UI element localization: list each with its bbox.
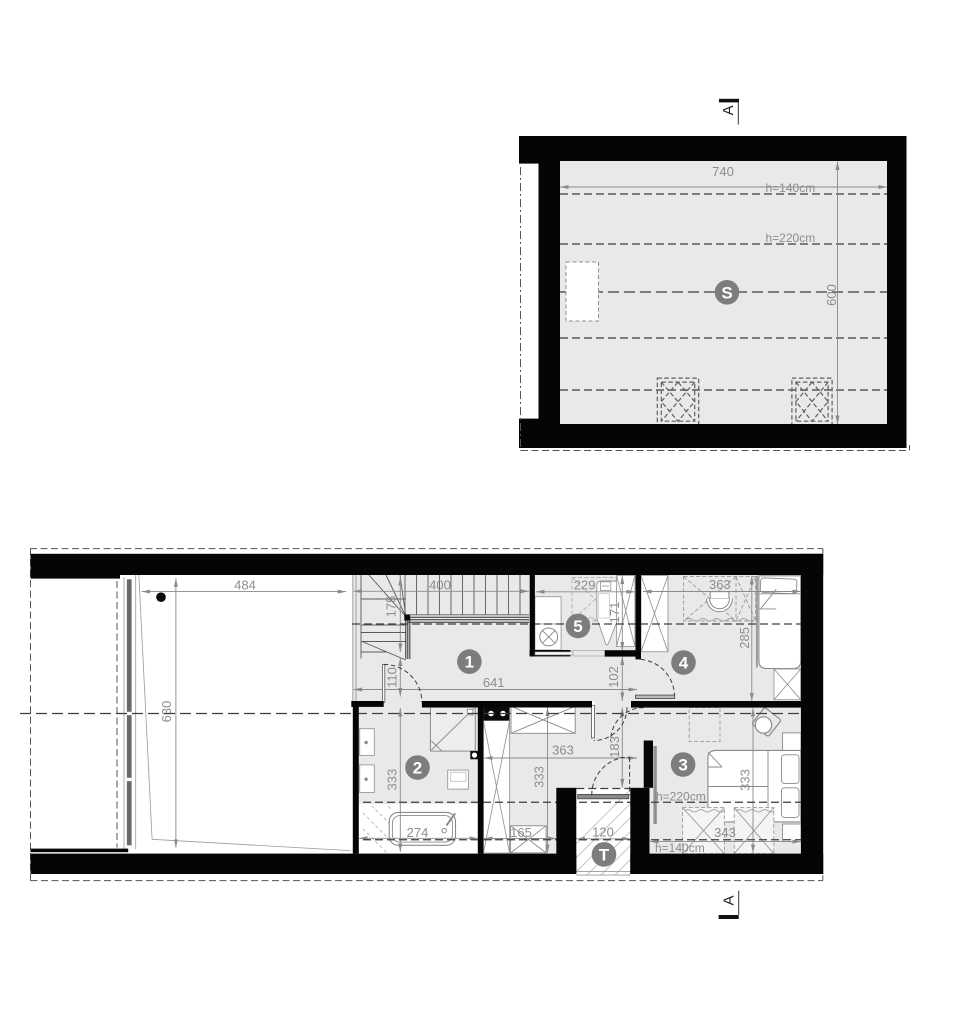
svg-text:333: 333 [385, 769, 400, 791]
svg-text:h=220cm: h=220cm [766, 231, 816, 245]
svg-text:183: 183 [607, 736, 622, 758]
svg-text:102: 102 [606, 666, 621, 688]
svg-text:A: A [720, 105, 737, 115]
svg-text:285: 285 [737, 627, 752, 649]
svg-text:600: 600 [824, 284, 839, 306]
svg-text:3: 3 [678, 756, 687, 775]
svg-text:h=140cm: h=140cm [766, 181, 816, 195]
svg-text:171: 171 [607, 602, 622, 624]
svg-text:165: 165 [510, 825, 532, 840]
svg-text:T: T [599, 845, 610, 864]
svg-text:630: 630 [159, 701, 174, 723]
svg-text:229: 229 [574, 578, 596, 593]
svg-text:740: 740 [712, 164, 734, 179]
svg-text:363: 363 [709, 577, 731, 592]
svg-text:h=140cm: h=140cm [655, 841, 705, 855]
svg-text:400: 400 [429, 578, 451, 593]
svg-text:333: 333 [738, 769, 753, 791]
svg-text:2: 2 [413, 759, 422, 778]
svg-text:110: 110 [385, 667, 400, 688]
svg-text:333: 333 [532, 766, 547, 788]
svg-text:363: 363 [552, 743, 574, 758]
svg-text:4: 4 [679, 654, 689, 673]
svg-text:1: 1 [465, 653, 474, 672]
svg-text:274: 274 [407, 825, 429, 840]
svg-text:343: 343 [714, 825, 736, 840]
svg-text:S: S [721, 283, 732, 302]
svg-text:5: 5 [573, 617, 582, 636]
svg-text:h=220cm: h=220cm [656, 790, 706, 804]
svg-text:484: 484 [234, 578, 256, 593]
svg-text:175: 175 [384, 596, 399, 618]
svg-text:641: 641 [483, 675, 505, 690]
svg-text:120: 120 [592, 825, 614, 840]
svg-text:A: A [721, 895, 738, 905]
